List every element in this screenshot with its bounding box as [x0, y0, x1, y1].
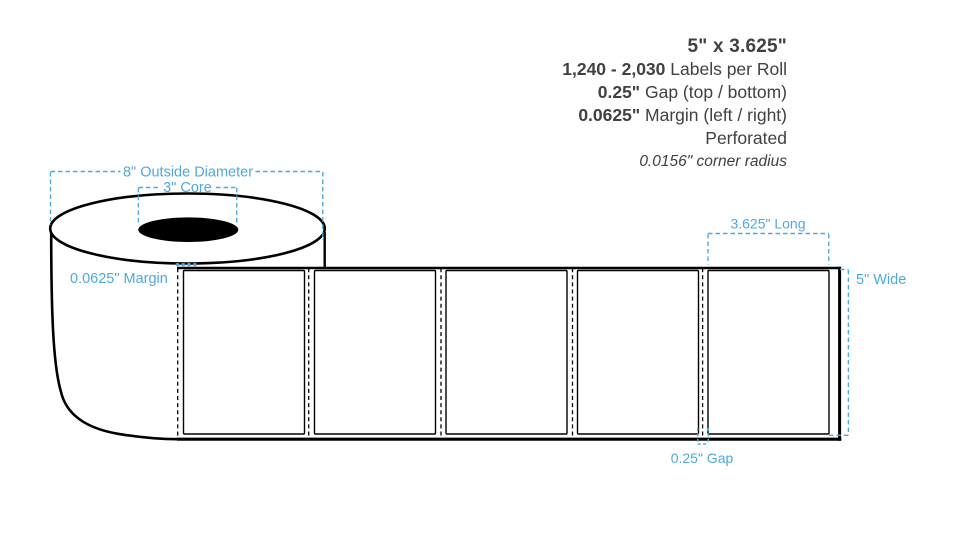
spec-value: 0.25"	[598, 82, 640, 102]
spec-corner-radius: 0.0156" corner radius	[562, 150, 787, 173]
spec-value: 1,240 - 2,030	[562, 59, 665, 79]
spec-value: 0.0625"	[578, 105, 640, 125]
spec-label: Gap (top / bottom)	[645, 82, 787, 102]
label-rect	[446, 271, 567, 435]
spec-row-labels-per-roll: 1,240 - 2,030 Labels per Roll	[562, 58, 787, 81]
label-roll-diagram-page: 8" Outside Diameter 3" Core 0.0625" Marg…	[0, 0, 972, 536]
wide-label: 5" Wide	[856, 272, 906, 288]
spec-block: 5" x 3.625" 1,240 - 2,030 Labels per Rol…	[562, 35, 787, 173]
label-rect	[315, 271, 436, 435]
spec-row-gap: 0.25" Gap (top / bottom)	[562, 81, 787, 104]
spec-perforated: Perforated	[562, 127, 787, 150]
label-rect	[708, 271, 829, 435]
spec-row-margin: 0.0625" Margin (left / right)	[562, 104, 787, 127]
label-rect	[578, 271, 699, 435]
long-label: 3.625" Long	[730, 216, 805, 232]
outside-diameter-label: 8" Outside Diameter	[123, 165, 253, 181]
margin-label: 0.0625" Margin	[70, 271, 168, 287]
spec-size: 5" x 3.625"	[562, 35, 787, 58]
spec-label: Labels per Roll	[670, 59, 787, 79]
gap-label: 0.25" Gap	[671, 450, 734, 466]
core-label: 3" Core	[163, 180, 212, 196]
roll-core-hole	[138, 217, 238, 242]
roll-diagram: 8" Outside Diameter 3" Core 0.0625" Marg…	[0, 0, 972, 536]
label-rect	[184, 271, 305, 435]
long-bracket	[708, 234, 829, 265]
spec-label: Margin (left / right)	[645, 105, 787, 125]
